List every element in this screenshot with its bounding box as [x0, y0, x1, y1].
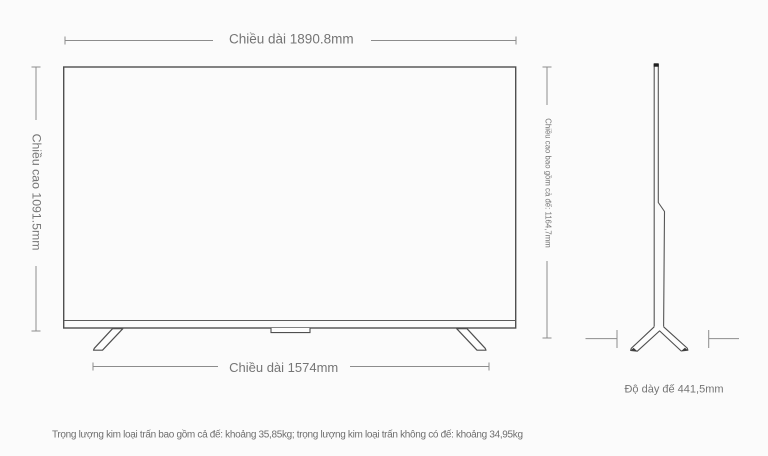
- svg-text:Chiều cao bao gồm cả đế: 1164,: Chiều cao bao gồm cả đế: 1164,7mm: [544, 118, 553, 247]
- svg-text:Trọng lượng kim loại trấn bao: Trọng lượng kim loại trấn bao gồm cả đế:…: [52, 429, 523, 441]
- svg-text:Chiều dài 1890.8mm: Chiều dài 1890.8mm: [229, 32, 354, 47]
- svg-text:Chiều cao 1091.5mm: Chiều cao 1091.5mm: [30, 134, 44, 251]
- svg-text:Độ dày đế 441,5mm: Độ dày đế 441,5mm: [624, 384, 723, 396]
- svg-text:Chiều dài 1574mm: Chiều dài 1574mm: [229, 360, 338, 375]
